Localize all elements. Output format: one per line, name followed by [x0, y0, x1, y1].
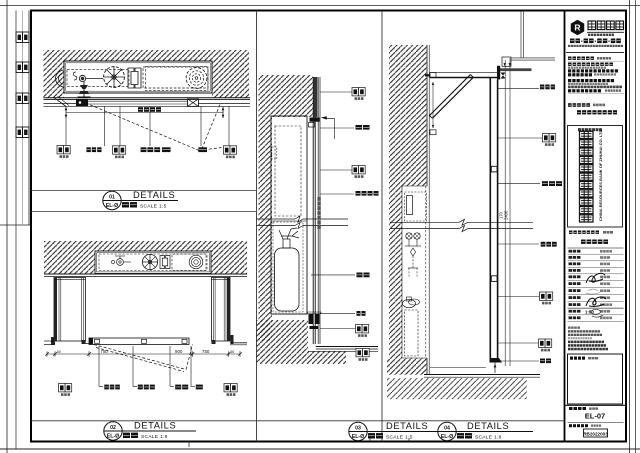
svg-text:03: 03	[355, 426, 361, 432]
svg-text:DETAILS: DETAILS	[467, 421, 509, 431]
svg-text:DETAILS: DETAILS	[134, 421, 176, 431]
svg-text:RB2022003: RB2022003	[583, 431, 608, 436]
svg-text:50: 50	[231, 350, 235, 354]
svg-text:1:8: 1:8	[160, 434, 168, 440]
svg-text:EL-07: EL-07	[585, 412, 605, 421]
svg-text:EL-Ø: EL-Ø	[441, 434, 453, 440]
svg-text:2400: 2400	[503, 210, 508, 220]
svg-text:750: 750	[202, 349, 210, 354]
svg-text:SCALE: SCALE	[141, 434, 159, 440]
svg-text:750: 750	[101, 349, 109, 354]
svg-text:1:8: 1:8	[494, 434, 502, 440]
svg-text:04: 04	[444, 426, 450, 432]
svg-text:R: R	[574, 23, 580, 33]
svg-text:1:5: 1:5	[159, 203, 167, 209]
svg-text:EL-Ø: EL-Ø	[107, 434, 119, 440]
svg-text:900: 900	[175, 349, 183, 354]
svg-text:50: 50	[57, 350, 61, 354]
svg-text:1:50: 1:50	[585, 310, 594, 315]
svg-text:02: 02	[110, 425, 116, 431]
svg-text:DETAILS: DETAILS	[386, 421, 428, 431]
svg-text:DETAILS: DETAILS	[133, 190, 175, 200]
svg-text:SCALE: SCALE	[386, 434, 404, 440]
svg-text:SCALE: SCALE	[140, 203, 158, 209]
svg-text:EL-Ø: EL-Ø	[106, 203, 118, 209]
svg-text:SCALE: SCALE	[475, 434, 493, 440]
svg-text:01: 01	[109, 195, 115, 201]
svg-text:CHINA RESOURCES BANK OF ZHUHAI: CHINA RESOURCES BANK OF ZHUHAI CO. LTD	[598, 130, 603, 221]
svg-text:EL-Ø: EL-Ø	[352, 434, 364, 440]
